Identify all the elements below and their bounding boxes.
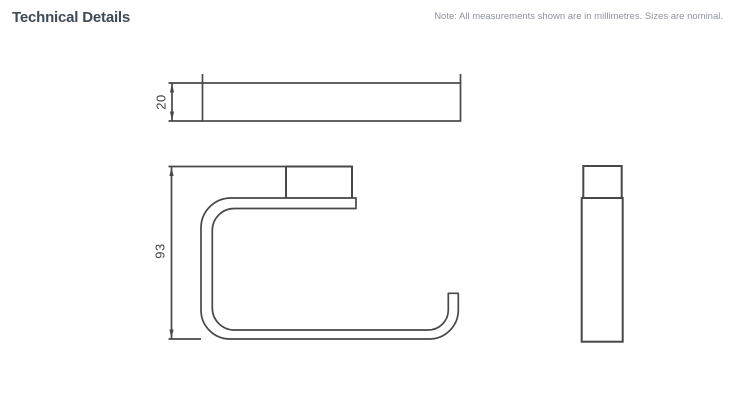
front-view: 93 bbox=[152, 167, 458, 340]
technical-drawing: 20 93 bbox=[0, 0, 750, 409]
technical-details-page: Technical Details Note: All measurements… bbox=[0, 0, 750, 409]
wall-plate-front bbox=[286, 167, 352, 199]
top-view-outline bbox=[203, 83, 461, 121]
dim-93-arrow-up bbox=[169, 167, 173, 176]
dim-93-arrow-down bbox=[169, 330, 173, 339]
dim-20-label: 20 bbox=[153, 94, 168, 109]
dim-20-arrow-up bbox=[170, 84, 174, 93]
side-view bbox=[582, 166, 623, 342]
holder-profile bbox=[201, 198, 458, 339]
holder-body-side bbox=[582, 198, 623, 342]
top-view: 20 bbox=[153, 74, 460, 121]
wall-plate-side bbox=[583, 166, 621, 198]
dim-93-label: 93 bbox=[152, 243, 167, 258]
dim-20-arrow-down bbox=[170, 112, 174, 121]
